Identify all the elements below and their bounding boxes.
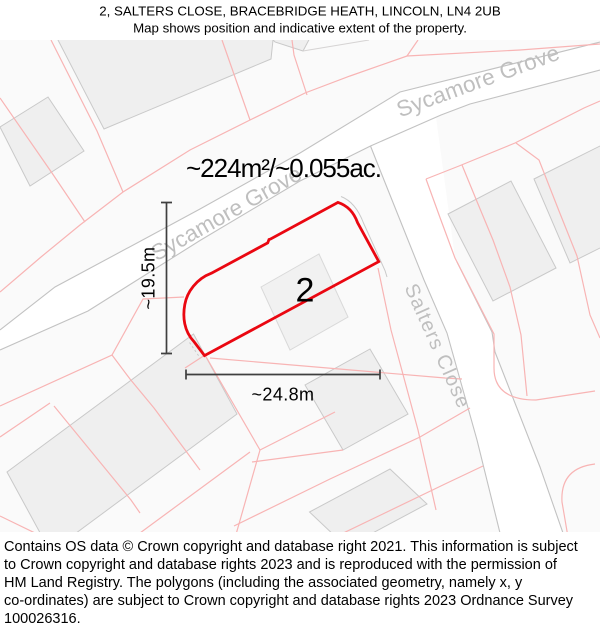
svg-text:to Crown copyright and databas: to Crown copyright and database rights 2… [4,557,558,573]
svg-text:~224m²/~0.055ac.: ~224m²/~0.055ac. [186,153,381,183]
svg-text:Contains OS data © Crown copyr: Contains OS data © Crown copyright and d… [4,539,578,555]
svg-text:Map shows position and indicat: Map shows position and indicative extent… [133,21,467,36]
svg-text:co-ordinates) are subject to C: co-ordinates) are subject to Crown copyr… [4,593,574,609]
svg-text:~19.5m: ~19.5m [139,247,159,310]
svg-text:~24.8m: ~24.8m [252,385,315,405]
svg-text:2: 2 [296,272,315,310]
svg-text:HM Land Registry. The polygons: HM Land Registry. The polygons (includin… [4,575,523,591]
svg-text:2, SALTERS CLOSE, BRACEBRIDGE: 2, SALTERS CLOSE, BRACEBRIDGE HEATH, LIN… [99,4,501,19]
svg-text:100026316.: 100026316. [4,611,81,625]
